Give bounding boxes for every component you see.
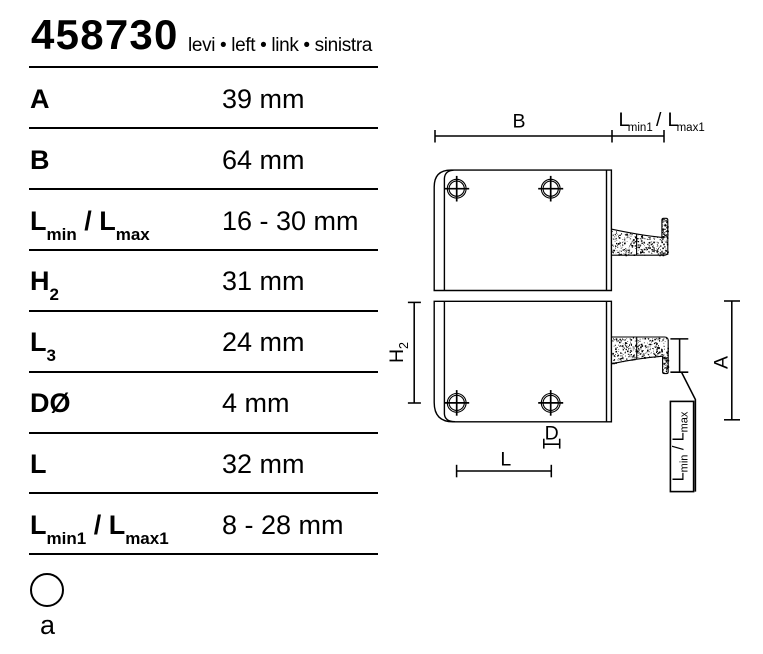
svg-text:D: D bbox=[545, 423, 559, 445]
svg-text:/: / bbox=[656, 109, 662, 131]
svg-text:A: A bbox=[711, 356, 733, 369]
svg-text:B: B bbox=[512, 111, 525, 133]
svg-text:H2: H2 bbox=[386, 342, 411, 363]
svg-text:max1: max1 bbox=[677, 122, 705, 134]
svg-text:L: L bbox=[500, 449, 511, 471]
svg-text:min1: min1 bbox=[628, 122, 653, 134]
svg-text:Lmin / Lmax: Lmin / Lmax bbox=[671, 411, 691, 481]
